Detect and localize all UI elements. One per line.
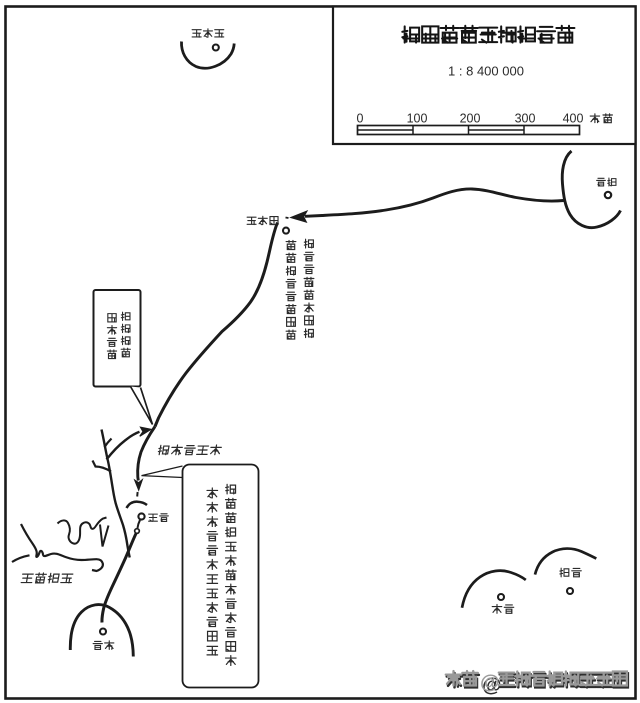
svg-text:200: 200 xyxy=(460,112,481,126)
svg-text:300: 300 xyxy=(515,112,536,126)
svg-text:@: @ xyxy=(480,672,500,694)
svg-text:400: 400 xyxy=(563,112,584,126)
svg-text:1 : 8 400 000: 1 : 8 400 000 xyxy=(448,64,524,79)
svg-text:0: 0 xyxy=(357,112,364,126)
svg-text:100: 100 xyxy=(407,112,428,126)
